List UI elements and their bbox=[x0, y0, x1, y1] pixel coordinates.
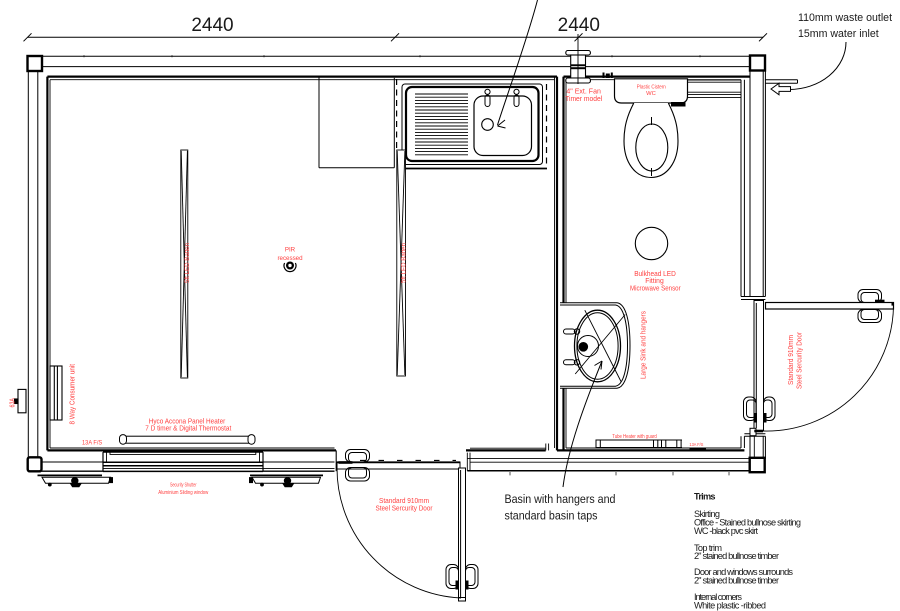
svg-text:WC -black pvc skirt: WC -black pvc skirt bbox=[694, 526, 758, 536]
svg-text:Standard 910mm: Standard 910mm bbox=[788, 335, 795, 385]
svg-text:2440: 2440 bbox=[191, 15, 233, 36]
svg-text:Plastic Cistern: Plastic Cistern bbox=[637, 84, 666, 90]
svg-text:7 D timer & Digital Thermostat: 7 D timer & Digital Thermostat bbox=[145, 426, 231, 433]
svg-text:Bulkhead LED: Bulkhead LED bbox=[634, 271, 676, 278]
svg-text:4" Ext. Fan: 4" Ext. Fan bbox=[566, 88, 601, 95]
svg-text:Microwave Sensor: Microwave Sensor bbox=[630, 285, 681, 292]
svg-text:Tube Heater with guard: Tube Heater with guard bbox=[612, 434, 657, 440]
svg-text:13A F/S: 13A F/S bbox=[82, 440, 103, 447]
svg-text:5ft LED Batten: 5ft LED Batten bbox=[402, 243, 408, 283]
svg-text:110mm waste outlet: 110mm waste outlet bbox=[798, 12, 892, 24]
svg-text:WC: WC bbox=[646, 91, 656, 97]
svg-text:standard basin taps: standard basin taps bbox=[505, 508, 598, 522]
svg-text:Fitting: Fitting bbox=[645, 278, 664, 285]
svg-text:13A F/S: 13A F/S bbox=[689, 442, 703, 447]
svg-text:recessed: recessed bbox=[277, 255, 303, 262]
svg-text:Timer model: Timer model bbox=[565, 96, 603, 103]
svg-text:Standard 910mm: Standard 910mm bbox=[379, 498, 429, 505]
svg-text:Steel Sercurity Door: Steel Sercurity Door bbox=[376, 506, 434, 513]
svg-text:15mm water inlet: 15mm water inlet bbox=[798, 28, 879, 40]
svg-text:2" stained bullnose timber: 2" stained bullnose timber bbox=[694, 576, 779, 586]
svg-text:63A: 63A bbox=[10, 398, 17, 408]
svg-text:Security Shutter: Security Shutter bbox=[170, 483, 197, 489]
svg-text:Basin with hangers and: Basin with hangers and bbox=[505, 492, 616, 506]
svg-text:2" stained bullnose timber: 2" stained bullnose timber bbox=[694, 551, 779, 561]
svg-text:White plastic -ribbed: White plastic -ribbed bbox=[694, 601, 766, 611]
svg-text:Steel Sercurity Door: Steel Sercurity Door bbox=[797, 331, 804, 389]
svg-text:Hyco Accona Panel Heater: Hyco Accona Panel Heater bbox=[149, 418, 226, 425]
svg-text:PIR: PIR bbox=[285, 247, 296, 254]
svg-text:2440: 2440 bbox=[558, 15, 600, 36]
svg-text:5ft LED Batten: 5ft LED Batten bbox=[185, 243, 191, 283]
svg-text:Aluminium Sliding window: Aluminium Sliding window bbox=[158, 490, 208, 496]
svg-text:Large Sink and hangers: Large Sink and hangers bbox=[641, 311, 648, 379]
svg-text:8 Way Consumer unit: 8 Way Consumer unit bbox=[70, 364, 77, 425]
svg-text:Trims: Trims bbox=[694, 492, 716, 502]
